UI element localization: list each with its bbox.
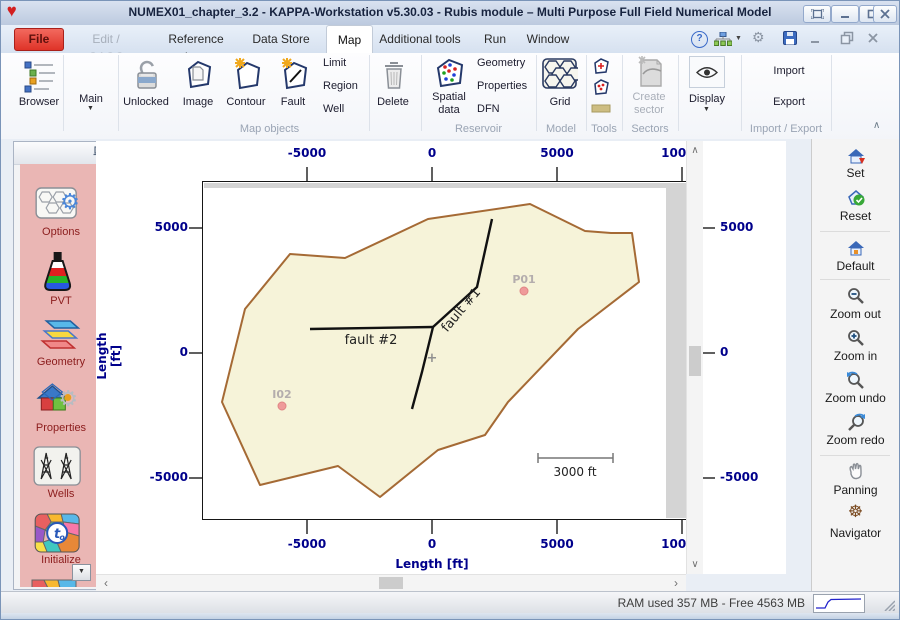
import-button[interactable]: Import [759,65,819,77]
group-sectors: Sectors [622,122,678,136]
menu-edit-qaqc: Edit / QAQC [73,30,139,48]
out-of-extent-top [204,183,700,188]
x-tick-top-1: 0 [407,146,457,160]
zoom-in-button[interactable]: Zoom in [812,349,899,363]
group-import-export: Import / Export [741,122,831,136]
dfn-button[interactable]: DFN [477,103,500,115]
zoom-out-button[interactable]: Zoom out [812,307,899,321]
minimize-button[interactable] [831,5,859,23]
menu-reference-logs[interactable]: Reference logs [156,30,236,48]
image-map-object-icon[interactable] [181,59,215,98]
group-map-objects: Map objects [118,122,421,136]
geometry-icon[interactable] [34,318,80,359]
polygon-add-tool-icon[interactable] [591,57,611,80]
fill-bar-tool-icon[interactable] [591,101,611,119]
settings-gears-icon[interactable]: ⚙ [752,29,765,46]
y-tick-left-0: 5000 [128,220,188,234]
next-sidebar-item-partial-icon[interactable] [30,576,78,587]
delete-trash-icon[interactable] [380,59,408,98]
dock-overflow-dropdown[interactable]: ▼ [72,564,91,581]
navigator-button[interactable]: Navigator [812,526,899,540]
status-bar: RAM used 357 MB - Free 4563 MB [1,591,899,614]
group-reservoir: Reservoir [421,122,536,136]
window-title: NUMEX01_chapter_3.2 - KAPPA-Workstation … [1,5,899,19]
reset-button[interactable]: Reset [812,209,899,223]
zoom-undo-button[interactable]: Zoom undo [812,391,899,405]
network-icon[interactable] [714,32,732,51]
scroll-up-icon[interactable]: ∧ [687,145,703,156]
close-button[interactable] [873,5,897,23]
menu-map-active-tab[interactable]: Map [326,25,373,54]
polygon-points-tool-icon[interactable] [591,78,611,101]
limit-button[interactable]: Limit [323,57,346,69]
mdi-close-icon[interactable] [867,31,879,50]
create-sector-button-2: sector [625,104,673,116]
x-tick-bottom-2: 5000 [532,537,582,551]
map-view[interactable]: -5000 0 5000 10000 Length [ft] 5000 0 -5… [96,141,786,574]
export-button[interactable]: Export [759,96,819,108]
wells-icon[interactable] [33,446,81,491]
properties-icon[interactable]: ⚙ [34,380,80,425]
menu-additional-tools[interactable]: Additional tools [379,30,461,48]
browser-button[interactable]: Browser [9,96,69,108]
x-tick-top-0: -5000 [282,146,332,160]
main-dropdown-icon[interactable]: ▼ [87,105,94,112]
y-tick-right-1: 0 [720,345,780,359]
menu-data-store[interactable]: Data Store [249,30,313,48]
map-plot-area[interactable]: fault #2 fault #1 + P01 I02 3000 ft [202,181,702,520]
unlocked-icon[interactable] [132,59,162,98]
x-tick-top-2: 5000 [532,146,582,160]
navigator-wheel-icon[interactable]: ☸ [848,503,863,520]
pvt-icon[interactable] [37,250,79,301]
region-button[interactable]: Region [323,80,358,92]
x-axis-title: Length [ft] [332,557,532,571]
set-button[interactable]: Set [812,166,899,180]
x-tick-bottom-0: -5000 [282,537,332,551]
menu-window[interactable]: Window [523,30,573,48]
create-sector-button: Create [625,91,673,103]
image-button[interactable]: Image [174,96,222,108]
sidebar-item-geometry[interactable]: Geometry [20,356,102,368]
y-tick-left-2: -5000 [128,470,188,484]
title-bar: ♥ NUMEX01_chapter_3.2 - KAPPA-Workstatio… [1,1,899,26]
y-tick-right-0: 5000 [720,220,780,234]
y-tick-left-1: 0 [128,345,188,359]
network-dropdown-icon[interactable]: ▼ [735,35,742,42]
x-tick-bottom-1: 0 [407,537,457,551]
create-sector-icon [633,56,667,95]
save-icon[interactable] [783,31,797,50]
scroll-right-icon[interactable]: › [670,576,682,590]
y-axis-title-left: Length [ft] [95,323,123,389]
main-button[interactable]: Main [67,93,115,105]
contour-map-object-icon[interactable] [230,58,264,98]
y-tick-right-2: -5000 [720,470,780,484]
mdi-minimize-icon[interactable] [809,31,821,50]
sidebar-item-options[interactable]: Options [20,226,102,238]
display-button[interactable]: Display [683,93,731,105]
help-icon[interactable]: ? [691,31,708,48]
svg-text:o: o [59,533,65,542]
options-icon[interactable]: ⚙ [33,182,81,229]
spatial-data-button[interactable]: Spatial [425,91,473,103]
well-P01-label: P01 [512,273,535,286]
well-I02-dot [278,402,286,410]
map-tools-panel: Set Reset Default Zoom out Zoom in [811,139,899,591]
menu-bar: File Edit / QAQC Reference logs Data Sto… [1,25,899,53]
scroll-down-icon[interactable]: ∨ [687,559,703,570]
workspace: ⚙ Options [1,139,899,591]
geometry-button[interactable]: Geometry [477,57,525,69]
well-button[interactable]: Well [323,103,344,115]
default-button[interactable]: Default [812,259,899,273]
ribbon-collapse-icon[interactable]: ∧ [873,120,880,131]
well-P01-dot [520,287,528,295]
fullscreen-button[interactable] [803,5,831,23]
origin-marker: + [427,351,438,366]
menu-file[interactable]: File [14,28,64,51]
zoom-redo-button[interactable]: Zoom redo [812,433,899,447]
group-tools: Tools [586,122,622,136]
scale-bar-label: 3000 ft [553,465,596,479]
vertical-scrollbar[interactable]: ∧ ∨ [686,141,703,574]
hscroll-thumb[interactable] [379,577,403,589]
ram-status-text: RAM used 357 MB - Free 4563 MB [618,596,805,610]
dock-header [14,142,109,165]
group-model: Model [536,122,586,136]
dock-item-list: ⚙ Options [20,164,102,587]
ribbon-toolbar: Browser Main ▼ Unlocked Image [1,53,899,140]
fault-button[interactable]: Fault [271,96,315,108]
mdi-restore-icon[interactable] [840,31,854,50]
window-frame-bottom [1,613,899,620]
display-dropdown-icon[interactable]: ▼ [703,106,710,113]
kappa-workstation-window: ♥ NUMEX01_chapter_3.2 - KAPPA-Workstatio… [0,0,900,620]
grid-icon[interactable] [542,57,578,96]
panning-button[interactable]: Panning [812,483,899,497]
spatial-data-button-2[interactable]: data [425,104,473,116]
sidebar-item-properties[interactable]: Properties [20,422,102,434]
display-eye-icon[interactable] [689,56,725,88]
browser-icon[interactable] [23,59,57,100]
sidebar-item-wells[interactable]: Wells [20,488,102,500]
fault-2-label: fault #2 [345,333,398,348]
scroll-left-icon[interactable]: ‹ [100,576,112,590]
properties-button[interactable]: Properties [477,80,527,92]
initialize-icon[interactable]: t o [33,512,81,559]
reservoir-map-svg: fault #2 fault #1 + P01 I02 3000 ft [203,182,701,519]
vscroll-thumb[interactable] [689,346,701,376]
well-I02-label: I02 [272,388,291,401]
svg-text:⚙: ⚙ [60,190,80,215]
delete-button[interactable]: Delete [369,96,417,108]
ram-usage-graph [813,594,865,613]
spatial-data-icon[interactable] [431,56,467,95]
unlocked-button[interactable]: Unlocked [116,96,176,108]
scale-bar [538,453,613,463]
menu-run[interactable]: Run [479,30,511,48]
fault-map-object-icon[interactable] [277,58,311,98]
contour-button[interactable]: Contour [222,96,270,108]
grid-button[interactable]: Grid [539,96,581,108]
horizontal-scrollbar[interactable]: ‹ › [96,574,686,591]
sidebar-item-pvt[interactable]: PVT [20,295,102,307]
